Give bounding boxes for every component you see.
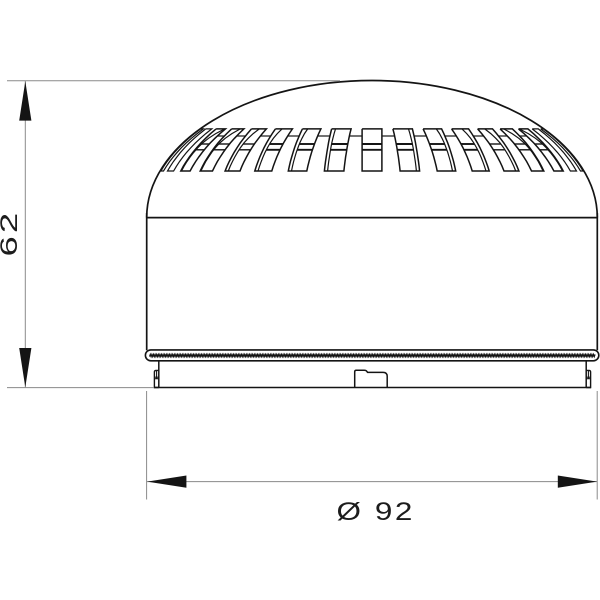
svg-text:62: 62 <box>0 210 22 257</box>
svg-text:Ø 92: Ø 92 <box>337 497 415 525</box>
